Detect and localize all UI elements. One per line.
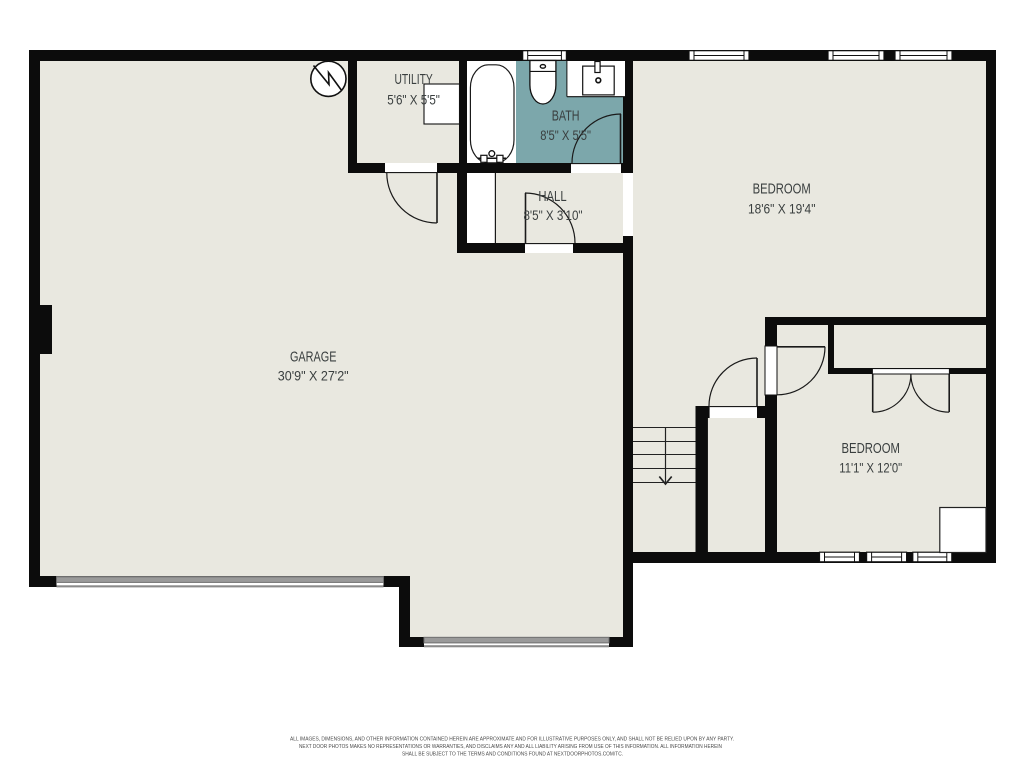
- svg-text:UTILITY: UTILITY: [394, 71, 433, 87]
- svg-text:BEDROOM: BEDROOM: [841, 439, 899, 456]
- svg-text:GARAGE: GARAGE: [290, 348, 336, 365]
- svg-text:8'5" X 3'10": 8'5" X 3'10": [523, 208, 582, 223]
- svg-text:SHALL BE SUBJECT TO THE TERMS: SHALL BE SUBJECT TO THE TERMS AND CONDIT…: [402, 752, 623, 758]
- svg-text:30'9" X 27'2": 30'9" X 27'2": [278, 368, 349, 384]
- svg-text:ALL IMAGES, DIMENSIONS, AND OT: ALL IMAGES, DIMENSIONS, AND OTHER INFORM…: [290, 737, 734, 743]
- svg-text:BATH: BATH: [552, 107, 580, 124]
- svg-text:8'5" X 5'5": 8'5" X 5'5": [540, 128, 591, 143]
- svg-text:NEXT DOOR PHOTOS MAKES NO REPR: NEXT DOOR PHOTOS MAKES NO REPRESENTATION…: [299, 744, 722, 750]
- svg-text:HALL: HALL: [538, 188, 566, 205]
- svg-text:5'6" X 5'5": 5'6" X 5'5": [387, 93, 440, 108]
- svg-text:18'6" X 19'4": 18'6" X 19'4": [748, 201, 815, 217]
- svg-text:11'1" X 12'0": 11'1" X 12'0": [839, 460, 902, 475]
- svg-text:BEDROOM: BEDROOM: [753, 180, 811, 197]
